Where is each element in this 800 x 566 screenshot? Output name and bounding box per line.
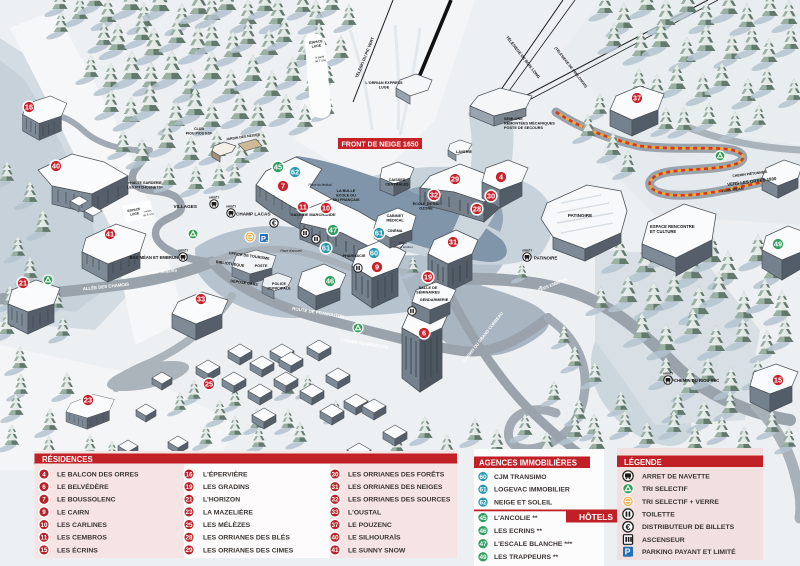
- svg-text:23: 23: [185, 509, 193, 516]
- svg-text:62: 62: [479, 499, 487, 506]
- svg-text:37: 37: [331, 522, 339, 529]
- svg-text:6: 6: [42, 484, 46, 491]
- svg-text:33: 33: [331, 509, 339, 516]
- svg-text:16: 16: [25, 103, 33, 112]
- svg-text:LES ÉCRINS: LES ÉCRINS: [57, 545, 98, 554]
- svg-text:LES ORRIANES DES FORÊTS: LES ORRIANES DES FORÊTS: [348, 469, 445, 478]
- svg-text:7: 7: [42, 497, 46, 504]
- svg-text:BAS MÉAN ET EMBRUN: BAS MÉAN ET EMBRUN: [130, 255, 178, 260]
- svg-text:LAVERIE: LAVERIE: [456, 150, 473, 154]
- svg-text:31: 31: [331, 484, 339, 491]
- svg-text:.: .: [631, 552, 632, 557]
- svg-text:6: 6: [422, 329, 426, 338]
- svg-text:«HALTE GARDERIELES PITCHOUNETS: «HALTE GARDERIELES PITCHOUNETS»: [127, 181, 163, 189]
- svg-text:32: 32: [430, 191, 438, 200]
- svg-text:10: 10: [40, 522, 48, 529]
- svg-text:LÉGENDE: LÉGENDE: [624, 458, 662, 467]
- svg-text:40: 40: [52, 162, 60, 171]
- svg-text:CJM TRANSIMO: CJM TRANSIMO: [494, 474, 547, 481]
- svg-text:19: 19: [424, 273, 432, 282]
- svg-text:PATINOIRE: PATINOIRE: [534, 256, 557, 261]
- svg-text:CABINETMÉDICAL: CABINETMÉDICAL: [386, 214, 404, 223]
- svg-text:LES MÉLÈZES: LES MÉLÈZES: [203, 520, 251, 529]
- svg-text:4: 4: [42, 471, 46, 478]
- svg-text:60: 60: [479, 474, 487, 481]
- svg-text:45: 45: [274, 163, 282, 172]
- svg-text:VILLAGES: VILLAGES: [174, 204, 197, 209]
- svg-text:NEIGE ET SOLEIL: NEIGE ET SOLEIL: [494, 500, 552, 507]
- svg-text:Place d'accueil: Place d'accueil: [280, 249, 301, 253]
- svg-text:15: 15: [774, 376, 782, 385]
- svg-text:21: 21: [19, 279, 27, 288]
- svg-text:PATINOIRE: PATINOIRE: [568, 213, 592, 218]
- svg-text:46: 46: [326, 277, 334, 286]
- svg-text:15: 15: [40, 547, 48, 554]
- svg-text:45: 45: [479, 515, 487, 522]
- svg-text:9: 9: [42, 509, 46, 516]
- svg-text:ARRÊT: ARRÊT: [209, 194, 220, 199]
- svg-text:LOGEVAC IMMOBILIER: LOGEVAC IMMOBILIER: [494, 487, 570, 494]
- svg-text:16: 16: [185, 471, 193, 478]
- svg-text:CHAMP LACAS: CHAMP LACAS: [236, 212, 271, 217]
- svg-text:25: 25: [205, 380, 213, 389]
- svg-text:RÉSIDENCES: RÉSIDENCES: [42, 455, 93, 464]
- svg-text:TOILETTE: TOILETTE: [642, 512, 675, 519]
- svg-text:28: 28: [185, 535, 193, 542]
- svg-text:LES GRADINS: LES GRADINS: [203, 484, 250, 491]
- svg-text:LE SILHOURAÏS: LE SILHOURAÏS: [348, 534, 401, 542]
- svg-text:€: €: [626, 522, 631, 532]
- svg-text:L'ESCALE BLANCHE ***: L'ESCALE BLANCHE ***: [494, 541, 573, 548]
- svg-text:LES ECRINS **: LES ECRINS **: [494, 528, 542, 535]
- svg-text:31: 31: [449, 238, 457, 247]
- svg-text:LES ORRIANES DES NEIGES: LES ORRIANES DES NEIGES: [348, 484, 443, 491]
- svg-text:49: 49: [479, 554, 487, 561]
- svg-text:61: 61: [479, 487, 487, 494]
- svg-text:TRI SELECTIF + VERRE: TRI SELECTIF + VERRE: [642, 499, 719, 506]
- svg-text:41: 41: [331, 547, 339, 554]
- svg-text:LE BALCON DES ORRES: LE BALCON DES ORRES: [57, 471, 139, 478]
- svg-text:61: 61: [322, 244, 330, 253]
- svg-text:GENDARMERIE: GENDARMERIE: [420, 298, 449, 302]
- svg-text:HÔTELS: HÔTELS: [579, 511, 613, 522]
- svg-text:40: 40: [331, 535, 339, 542]
- svg-text:CINÉMA: CINÉMA: [388, 228, 403, 233]
- svg-text:30: 30: [487, 192, 495, 201]
- svg-text:€: €: [272, 221, 276, 228]
- svg-text:LE SUNNY SNOW: LE SUNNY SNOW: [348, 547, 406, 554]
- svg-text:33: 33: [197, 295, 205, 304]
- svg-text:25: 25: [185, 522, 193, 529]
- svg-text:POSTE: POSTE: [255, 264, 268, 268]
- svg-text:DISTRIBUTEUR DE BILLETS: DISTRIBUTEUR DE BILLETS: [642, 524, 735, 531]
- svg-text:P: P: [261, 234, 266, 243]
- svg-text:62: 62: [291, 168, 299, 177]
- svg-text:ARRÊT: ARRÊT: [522, 247, 533, 252]
- svg-text:L'ANCOLIE **: L'ANCOLIE **: [494, 515, 538, 522]
- svg-text:30: 30: [331, 471, 339, 478]
- svg-text:LE CAIRN: LE CAIRN: [57, 509, 89, 516]
- svg-text:9: 9: [375, 263, 379, 272]
- svg-text:60: 60: [370, 249, 378, 258]
- svg-text:↗: ↗: [538, 285, 542, 291]
- svg-text:FRONT DE NEIGE 1650: FRONT DE NEIGE 1650: [341, 141, 418, 148]
- svg-text:LE POUZENC: LE POUZENC: [348, 522, 392, 529]
- svg-text:ARRÊT: ARRÊT: [226, 203, 237, 208]
- svg-text:PHARMACIE: PHARMACIE: [343, 254, 366, 258]
- svg-text:19: 19: [185, 484, 193, 491]
- svg-text:SALLE DESÉMINAIRES: SALLE DESÉMINAIRES: [416, 286, 440, 295]
- svg-text:L'ÉPERVIÈRE: L'ÉPERVIÈRE: [203, 469, 248, 478]
- svg-text:32: 32: [331, 497, 339, 504]
- svg-text:29: 29: [185, 547, 193, 554]
- svg-text:21: 21: [185, 497, 193, 504]
- svg-text:L'OUSTAL: L'OUSTAL: [348, 509, 381, 516]
- svg-text:ASCENSEUR: ASCENSEUR: [642, 537, 685, 544]
- svg-text:46: 46: [479, 528, 487, 535]
- svg-text:49: 49: [774, 240, 782, 249]
- svg-text:11: 11: [41, 535, 48, 542]
- svg-text:LA MAZELIÈRE: LA MAZELIÈRE: [203, 507, 253, 516]
- svg-text:47: 47: [329, 226, 337, 235]
- svg-text:23: 23: [84, 396, 92, 405]
- svg-text:10: 10: [322, 204, 330, 213]
- svg-text:47: 47: [479, 541, 487, 548]
- svg-text:61: 61: [375, 229, 383, 238]
- svg-text:LE BELVÉDÈRE: LE BELVÉDÈRE: [57, 482, 109, 491]
- svg-text:37: 37: [633, 94, 641, 103]
- svg-text:28: 28: [473, 205, 481, 214]
- svg-text:LES ORRIANES DES SOURCES: LES ORRIANES DES SOURCES: [348, 497, 451, 504]
- svg-text:AGENCES IMMOBILIÈRES: AGENCES IMMOBILIÈRES: [479, 459, 577, 468]
- svg-text:LE BOUSSOLENC: LE BOUSSOLENC: [57, 497, 116, 504]
- svg-text:29: 29: [451, 175, 459, 184]
- svg-text:LES ORRIANES DES CIMES: LES ORRIANES DES CIMES: [203, 547, 294, 554]
- svg-text:LES TRAPPEURS **: LES TRAPPEURS **: [494, 554, 559, 561]
- svg-text:TRI SELECTIF: TRI SELECTIF: [642, 486, 688, 493]
- svg-text:ARRÊT: ARRÊT: [178, 247, 189, 252]
- svg-text:PARKING PAYANT ET LIMITÉ: PARKING PAYANT ET LIMITÉ: [642, 547, 736, 556]
- svg-text:LES CARLINES: LES CARLINES: [57, 522, 107, 529]
- svg-text:Place du festival: Place du festival: [308, 183, 332, 187]
- svg-text:11: 11: [299, 203, 307, 212]
- svg-text:P: P: [625, 547, 631, 557]
- svg-text:LES ORRIANES DES BLÉS: LES ORRIANES DES BLÉS: [203, 533, 290, 542]
- svg-text:L'HORIZON: L'HORIZON: [203, 497, 240, 504]
- svg-text:7: 7: [281, 182, 285, 191]
- svg-text:ARRET DE NAVETTE: ARRET DE NAVETTE: [642, 473, 710, 480]
- svg-text:41: 41: [106, 230, 114, 239]
- svg-text:CHEMIN DU RIOU SEC: CHEMIN DU RIOU SEC: [674, 378, 719, 383]
- svg-text:ARRÊT: ARRÊT: [663, 370, 674, 375]
- svg-text:LES CEMBROS: LES CEMBROS: [57, 535, 107, 542]
